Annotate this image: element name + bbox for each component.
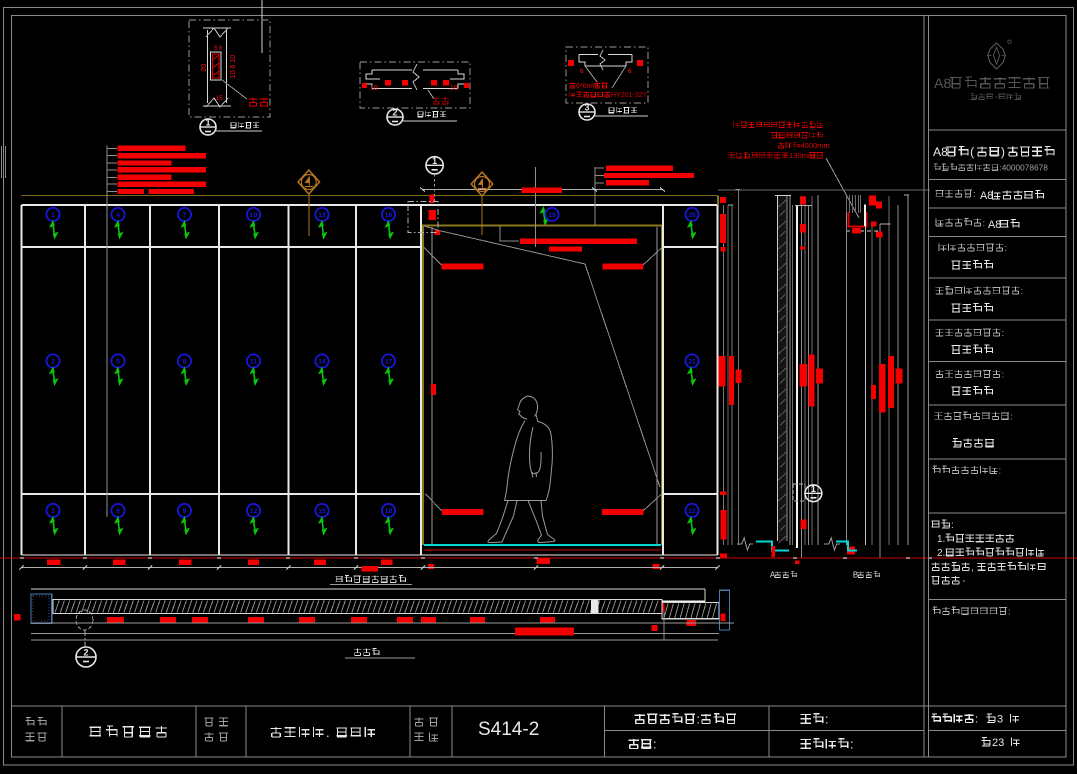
svg-text:.: . <box>326 725 330 740</box>
svg-text:14: 14 <box>318 359 326 366</box>
svg-text:4: 4 <box>116 212 120 219</box>
svg-text:): ) <box>1001 145 1005 159</box>
svg-text:1: 1 <box>811 484 816 494</box>
svg-text:5: 5 <box>116 359 120 366</box>
svg-text:9: 9 <box>183 508 187 515</box>
svg-text:15: 15 <box>216 96 223 102</box>
svg-text:6: 6 <box>580 68 584 75</box>
svg-text:6: 6 <box>116 508 120 515</box>
svg-text::: : <box>1008 607 1011 618</box>
svg-text::: : <box>825 713 828 727</box>
svg-text::: : <box>1005 243 1008 254</box>
svg-text:HY201-32Y: HY201-32Y <box>611 92 648 99</box>
svg-text::: : <box>975 714 978 726</box>
svg-text:A8: A8 <box>980 190 993 202</box>
svg-text:130mm: 130mm <box>789 151 814 160</box>
svg-text::: : <box>1010 412 1013 423</box>
svg-text:21: 21 <box>688 359 696 366</box>
svg-text:22: 22 <box>688 508 696 515</box>
svg-text:20: 20 <box>688 212 696 219</box>
svg-text::: : <box>1021 286 1024 297</box>
svg-text:,: , <box>971 563 974 574</box>
svg-text:10: 10 <box>370 85 378 92</box>
svg-text:A: A <box>770 571 776 580</box>
svg-text:20: 20 <box>201 64 208 72</box>
svg-text:11: 11 <box>250 359 257 366</box>
svg-text::: : <box>973 189 976 200</box>
svg-text:10 6 10: 10 6 10 <box>230 55 237 78</box>
svg-text::: : <box>697 713 700 727</box>
svg-text:16: 16 <box>385 212 393 219</box>
svg-text:A8: A8 <box>934 76 951 92</box>
svg-text:4000mm: 4000mm <box>800 141 830 150</box>
svg-text:17: 17 <box>385 359 393 366</box>
svg-text:3: 3 <box>997 714 1003 726</box>
svg-text:23: 23 <box>992 737 1004 749</box>
svg-text:5 6: 5 6 <box>214 46 223 52</box>
svg-text:3: 3 <box>584 103 589 113</box>
svg-text:(: ( <box>970 145 974 159</box>
svg-text:18: 18 <box>385 508 393 515</box>
svg-text:7: 7 <box>183 212 187 219</box>
svg-text:2: 2 <box>83 648 88 658</box>
svg-text:2: 2 <box>392 108 397 118</box>
svg-text::: : <box>850 738 853 752</box>
svg-text:1: 1 <box>432 156 437 166</box>
svg-text:13: 13 <box>318 212 326 219</box>
svg-text::: : <box>653 738 656 752</box>
svg-text:A8: A8 <box>988 219 1001 231</box>
svg-text:6: 6 <box>628 68 632 75</box>
svg-text:19: 19 <box>548 212 556 219</box>
svg-text::: : <box>999 466 1002 477</box>
svg-text:10: 10 <box>450 85 458 92</box>
svg-text:3: 3 <box>51 508 55 515</box>
svg-text::: : <box>1002 328 1005 339</box>
svg-text:1: 1 <box>51 212 55 219</box>
svg-text:15: 15 <box>318 508 326 515</box>
svg-text:1.: 1. <box>937 534 945 545</box>
svg-text::: : <box>983 218 986 229</box>
svg-text::: : <box>951 520 954 531</box>
svg-text:12: 12 <box>250 508 258 515</box>
svg-text:2: 2 <box>51 359 55 366</box>
svg-text:S414-2: S414-2 <box>478 719 539 740</box>
svg-text:6*6mm: 6*6mm <box>576 83 598 90</box>
svg-text:A8: A8 <box>933 145 948 159</box>
svg-text:2.: 2. <box>937 548 945 559</box>
svg-text:B: B <box>853 571 858 580</box>
svg-text:8: 8 <box>183 359 187 366</box>
svg-text::4000078678: :4000078678 <box>999 163 1048 173</box>
svg-text::: : <box>1002 370 1005 381</box>
svg-text:1: 1 <box>205 118 210 128</box>
svg-text:10: 10 <box>250 212 258 219</box>
